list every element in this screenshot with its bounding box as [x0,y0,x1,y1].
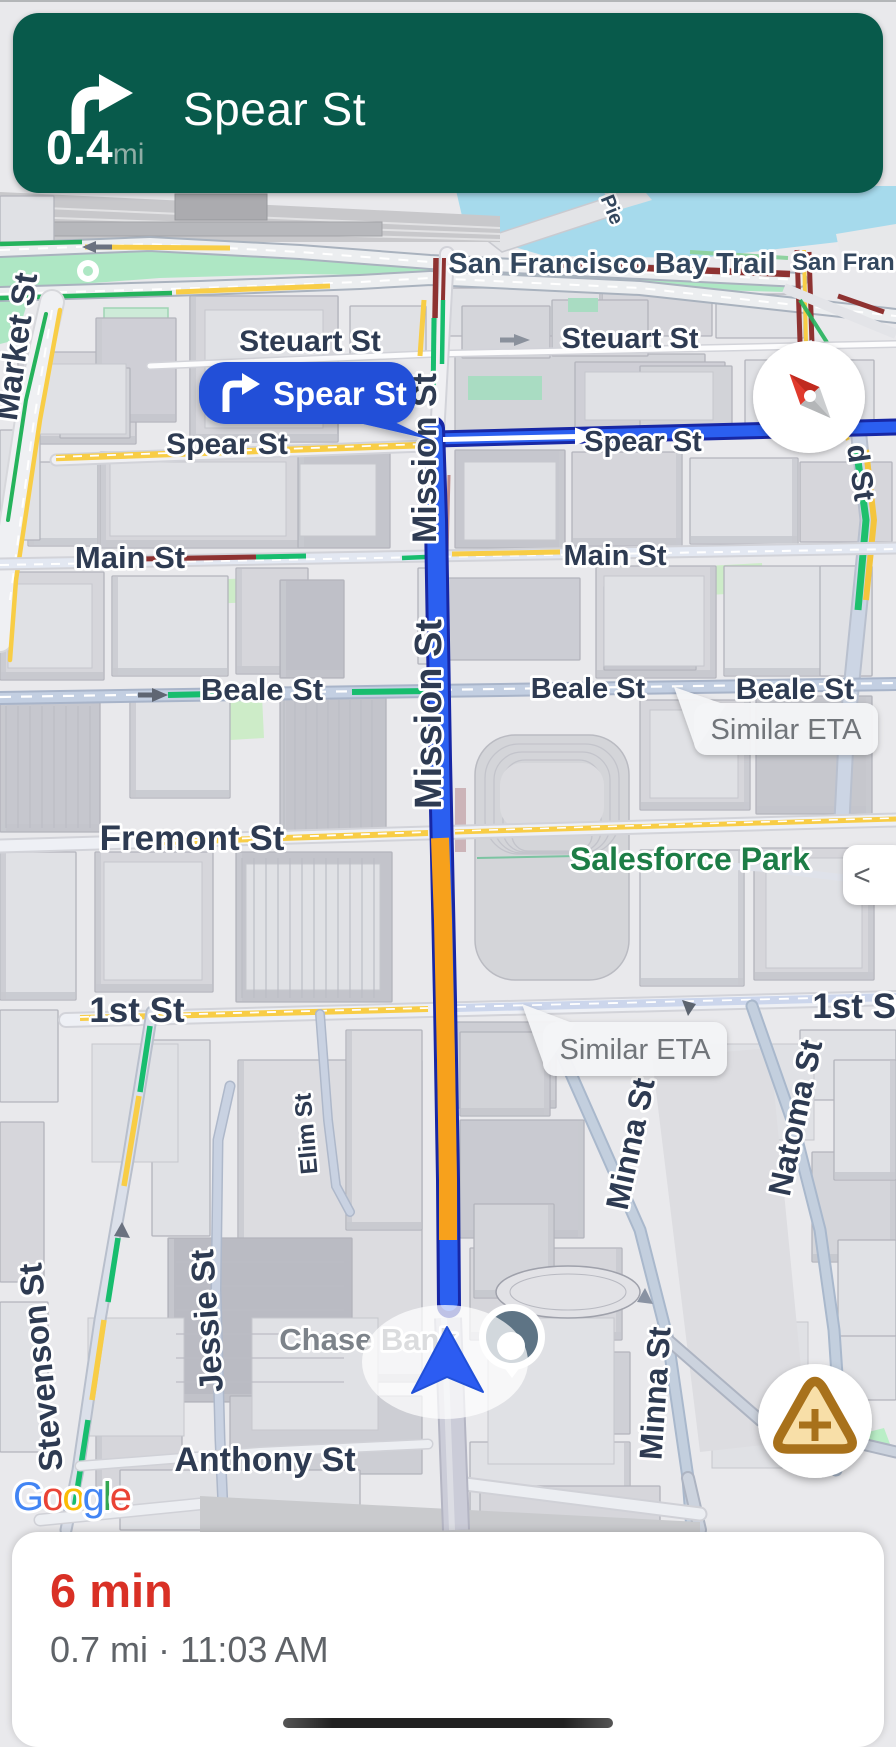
svg-text:Mission St: Mission St [408,619,450,809]
svg-text:<: < [853,859,871,892]
svg-text:Main St: Main St [75,540,185,575]
svg-text:Main St: Main St [563,540,666,572]
svg-text:Beale St: Beale St [736,673,854,706]
svg-text:San Francisco Bay Trail: San Francisco Bay Trail [448,248,775,280]
svg-text:Beale St: Beale St [201,672,323,707]
svg-text:Steuart St: Steuart St [239,325,381,358]
svg-text:1st St: 1st St [89,991,185,1030]
svg-text:Salesforce Park: Salesforce Park [570,841,810,877]
svg-text:Spear St: Spear St [273,375,407,412]
svg-text:Similar ETA: Similar ETA [711,714,863,746]
svg-text:1st St: 1st St [812,987,896,1026]
svg-text:Google: Google [13,1475,131,1519]
svg-text:Spear St: Spear St [584,426,702,458]
svg-text:Anthony St: Anthony St [174,1441,355,1479]
svg-text:San Fran: San Fran [792,249,895,276]
svg-text:Spear St: Spear St [166,428,288,461]
svg-text:Beale St: Beale St [531,673,646,705]
svg-text:Similar ETA: Similar ETA [560,1034,712,1066]
svg-text:Steuart St: Steuart St [562,323,699,355]
svg-text:Fremont St: Fremont St [100,819,285,858]
